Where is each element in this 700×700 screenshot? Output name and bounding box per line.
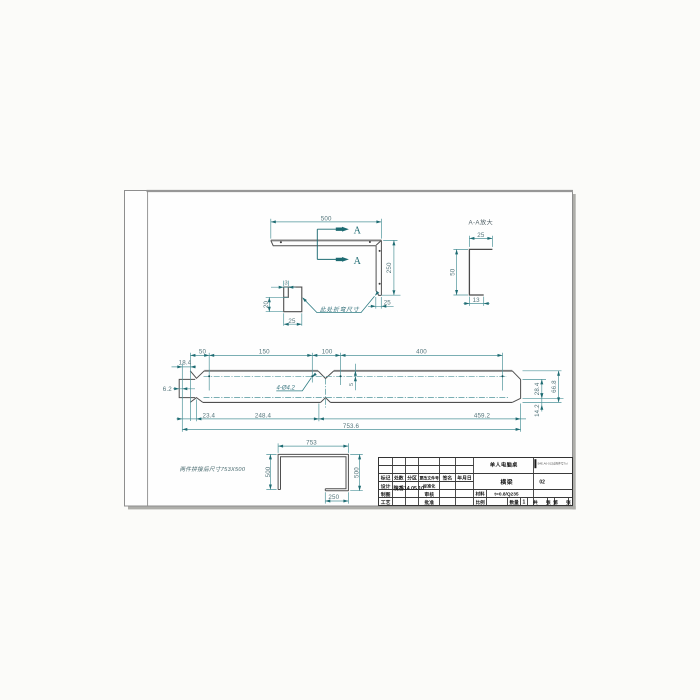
svg-text:5: 5 xyxy=(349,383,355,386)
svg-text:A: A xyxy=(354,226,362,237)
svg-text:制图: 制图 xyxy=(381,491,391,498)
svg-text:25: 25 xyxy=(477,232,485,239)
svg-text:比例: 比例 xyxy=(475,499,485,506)
svg-text:批准: 批准 xyxy=(424,499,434,506)
svg-text:数量: 数量 xyxy=(509,499,519,506)
svg-text:6.2: 6.2 xyxy=(163,386,172,393)
svg-text:66.8: 66.8 xyxy=(551,380,558,393)
svg-text:13: 13 xyxy=(473,297,481,304)
svg-text:A-A放大: A-A放大 xyxy=(468,218,493,226)
svg-text:单人电脑桌: 单人电脑桌 xyxy=(490,461,518,469)
svg-text:A: A xyxy=(354,256,362,267)
svg-text:处数: 处数 xyxy=(393,475,404,482)
svg-text:签名: 签名 xyxy=(442,475,453,482)
svg-text:张: 张 xyxy=(566,499,571,506)
svg-text:横梁: 横梁 xyxy=(500,478,513,486)
svg-text:25: 25 xyxy=(384,299,392,306)
svg-text:工艺: 工艺 xyxy=(381,499,391,506)
svg-text:250: 250 xyxy=(386,262,393,273)
svg-text:隗香14.05.10: 隗香14.05.10 xyxy=(394,484,425,492)
svg-text:248.4: 248.4 xyxy=(255,412,272,419)
svg-text:500: 500 xyxy=(265,466,272,477)
svg-text:18.4: 18.4 xyxy=(179,360,192,367)
svg-text:150: 150 xyxy=(259,349,270,356)
svg-text:第: 第 xyxy=(553,499,558,506)
svg-text:753: 753 xyxy=(306,439,317,446)
svg-text:753.6: 753.6 xyxy=(343,423,360,430)
svg-text:设计: 设计 xyxy=(381,483,391,490)
svg-text:28.4: 28.4 xyxy=(534,382,541,395)
svg-text:4-Ø4.2: 4-Ø4.2 xyxy=(277,385,296,391)
svg-text:标准化: 标准化 xyxy=(422,483,436,489)
svg-text:500: 500 xyxy=(353,467,360,478)
svg-text:459.2: 459.2 xyxy=(474,412,491,419)
svg-text:100: 100 xyxy=(322,349,333,356)
svg-text:500: 500 xyxy=(321,216,332,223)
svg-text:23.4: 23.4 xyxy=(203,412,216,419)
svg-text:3: 3 xyxy=(284,281,287,287)
svg-text:标记: 标记 xyxy=(380,475,391,482)
svg-text:比例件号TuI: 比例件号TuI xyxy=(553,462,568,466)
svg-text:25: 25 xyxy=(288,318,296,325)
svg-text:14.2: 14.2 xyxy=(534,404,541,417)
svg-text:B4E.A6-012: B4E.A6-012 xyxy=(538,462,554,466)
svg-text:共: 共 xyxy=(533,499,538,506)
svg-text:审核: 审核 xyxy=(424,491,434,498)
svg-text:250: 250 xyxy=(328,494,339,501)
svg-text:两件拼接后尺寸753X500: 两件拼接后尺寸753X500 xyxy=(180,466,246,473)
svg-text:此处折弯尺寸: 此处折弯尺寸 xyxy=(320,306,360,314)
svg-text:分区: 分区 xyxy=(407,475,417,482)
svg-text:400: 400 xyxy=(416,349,427,356)
svg-text:年月日: 年月日 xyxy=(457,475,472,482)
svg-text:20: 20 xyxy=(263,301,270,309)
svg-text:1: 1 xyxy=(523,500,526,506)
svg-text:02: 02 xyxy=(539,479,545,485)
svg-text:张: 张 xyxy=(546,499,551,506)
svg-text:更改文件号: 更改文件号 xyxy=(419,475,439,480)
svg-text:t=0.8/Q235: t=0.8/Q235 xyxy=(494,492,518,498)
svg-text:50: 50 xyxy=(449,268,456,276)
svg-text:50: 50 xyxy=(199,349,207,356)
svg-text:材料: 材料 xyxy=(474,491,485,498)
